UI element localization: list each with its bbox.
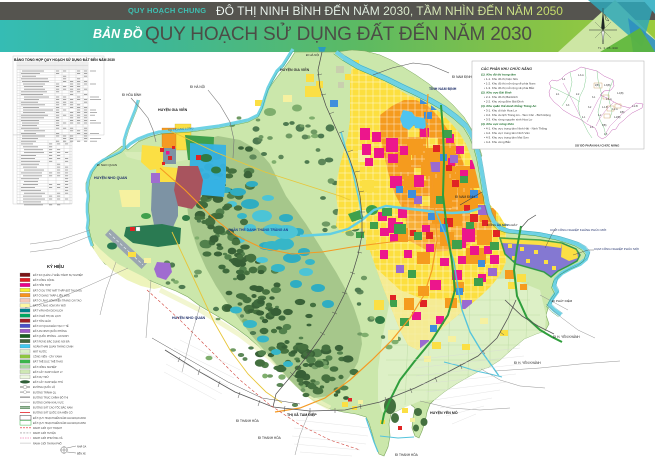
svg-text:ĐẤT Ở DỰ TRỮ MẬT THẤP (ĐÔ THỊ: ĐẤT Ở DỰ TRỮ MẬT THẤP (ĐÔ THỊ CAO) bbox=[33, 289, 82, 292]
svg-text:ĐẤT CÂY XANH CÁCH LY: ĐẤT CÂY XANH CÁCH LY bbox=[33, 371, 63, 374]
svg-text:ĐẤT SX QUẢN LÝ ĐIỀU HÀNH SỰ NG: ĐẤT SX QUẢN LÝ ĐIỀU HÀNH SỰ NGHIỆP bbox=[33, 274, 83, 277]
svg-text:RANH GIỚI QUY HOẠCH: RANH GIỚI QUY HOẠCH bbox=[33, 427, 62, 430]
svg-text:ĐẤT CÔNG CỘNG: ĐẤT CÔNG CỘNG bbox=[33, 279, 54, 282]
svg-text:ĐƯỜNG TRÁNH QL: ĐƯỜNG TRÁNH QL bbox=[33, 391, 57, 394]
svg-text:ĐẤT NÔNG NGHIỆP: ĐẤT NÔNG NGHIỆP bbox=[33, 366, 57, 369]
svg-text:KÝ HIỆU: KÝ HIỆU bbox=[47, 264, 64, 269]
svg-text:ĐƯỜNG SẮT QUỐC GIA HIỆN CÓ: ĐƯỜNG SẮT QUỐC GIA HIỆN CÓ bbox=[33, 412, 73, 415]
svg-text:RANH GIỚI PHƯỜNG XÃ: RANH GIỚI PHƯỜNG XÃ bbox=[33, 437, 63, 440]
svg-text:ĐẤT DỰ TRỮ: ĐẤT DỰ TRỮ bbox=[33, 376, 50, 379]
svg-text:ĐẤT QUỐC PHÒNG - AN NINH: ĐẤT QUỐC PHÒNG - AN NINH bbox=[33, 335, 69, 338]
svg-text:NHÀ GA: NHÀ GA bbox=[77, 446, 87, 449]
svg-text:ĐẤT QUY HOẠCH ĐẾN NĂM GIAI ĐOẠ: ĐẤT QUY HOẠCH ĐẾN NĂM GIAI ĐOẠN 2050 bbox=[33, 422, 86, 425]
svg-text:ĐƯỜNG CHÍNH KHU VỰC: ĐƯỜNG CHÍNH KHU VỰC bbox=[33, 402, 64, 405]
svg-text:ĐẤT CƠ QUAN ĐÀO TẠO Y TẾ: ĐẤT CƠ QUAN ĐÀO TẠO Y TẾ bbox=[33, 325, 69, 328]
svg-text:ĐẤT Ở LÀNG XÓM HIỆN TRẠNG CẢI: ĐẤT Ở LÀNG XÓM HIỆN TRẠNG CẢI TẠO bbox=[33, 300, 81, 303]
svg-text:RANH GIỚI THÀNH PHỐ: RANH GIỚI THÀNH PHỐ bbox=[33, 442, 62, 445]
svg-text:BẢNG TỔNG HỢP QUY HOẠCH SỬ DỤN: BẢNG TỔNG HỢP QUY HOẠCH SỬ DỤNG ĐẤT ĐẾN … bbox=[14, 57, 115, 62]
svg-text:ĐẤT VĂN HÓA DỊCH LỊCH: ĐẤT VĂN HÓA DỊCH LỊCH bbox=[33, 310, 63, 313]
svg-text:ĐẤT CÂY XANH ĐẶC THÙ: ĐẤT CÂY XANH ĐẶC THÙ bbox=[33, 381, 63, 384]
svg-text:ĐẤT TÔN GIÁO: ĐẤT TÔN GIÁO bbox=[33, 320, 51, 323]
svg-text:NGẮM THAM QUAN THẮNG CẢNH: NGẮM THAM QUAN THẮNG CẢNH bbox=[33, 345, 74, 348]
svg-text:ĐẤT QUY HOẠCH ĐẾN NĂM GIAI ĐOẠ: ĐẤT QUY HOẠCH ĐẾN NĂM GIAI ĐOẠN 2030 bbox=[33, 417, 86, 420]
svg-text:ĐƯỜNG TRỤC CHÍNH ĐÔ THỊ: ĐƯỜNG TRỤC CHÍNH ĐÔ THỊ bbox=[33, 396, 68, 399]
svg-text:ĐẤT Ở LÀNG XÓM XÂY MỚI: ĐẤT Ở LÀNG XÓM XÂY MỚI bbox=[33, 305, 66, 308]
svg-text:ĐẤT HỖN HỢP: ĐẤT HỖN HỢP bbox=[33, 284, 51, 287]
svg-text:RANH GIỚI HUYỆN: RANH GIỚI HUYỆN bbox=[33, 432, 56, 435]
svg-text:ĐẤT RỪNG ĐẶC DỤNG NÚI ĐÁ: ĐẤT RỪNG ĐẶC DỤNG NÚI ĐÁ bbox=[33, 340, 70, 343]
svg-text:BẾN XE: BẾN XE bbox=[77, 453, 86, 456]
svg-text:ĐƯỜNG SẮT CAO TỐC BẮC NAM: ĐƯỜNG SẮT CAO TỐC BẮC NAM bbox=[33, 407, 72, 410]
svg-text:ĐẤT AN NINH QUỐC PHÒNG: ĐẤT AN NINH QUỐC PHÒNG bbox=[33, 330, 67, 333]
svg-text:ĐẤT Ở DẠNG THẤP (LIỀN MỚI): ĐẤT Ở DẠNG THẤP (LIỀN MỚI) bbox=[33, 294, 70, 297]
svg-text:CÔNG VIÊN - CÂY XANH: CÔNG VIÊN - CÂY XANH bbox=[33, 356, 62, 359]
svg-text:ĐƯỜNG QUỐC LỘ: ĐƯỜNG QUỐC LỘ bbox=[33, 386, 55, 389]
svg-text:MẶT NƯỚC: MẶT NƯỚC bbox=[33, 351, 47, 354]
svg-text:ĐẤT Ở ĐÔ THỊ DU LỊCH: ĐẤT Ở ĐÔ THỊ DU LỊCH bbox=[33, 315, 61, 318]
svg-text:ĐẤT THỂ DỤC THỂ THAO: ĐẤT THỂ DỤC THỂ THAO bbox=[33, 361, 63, 364]
